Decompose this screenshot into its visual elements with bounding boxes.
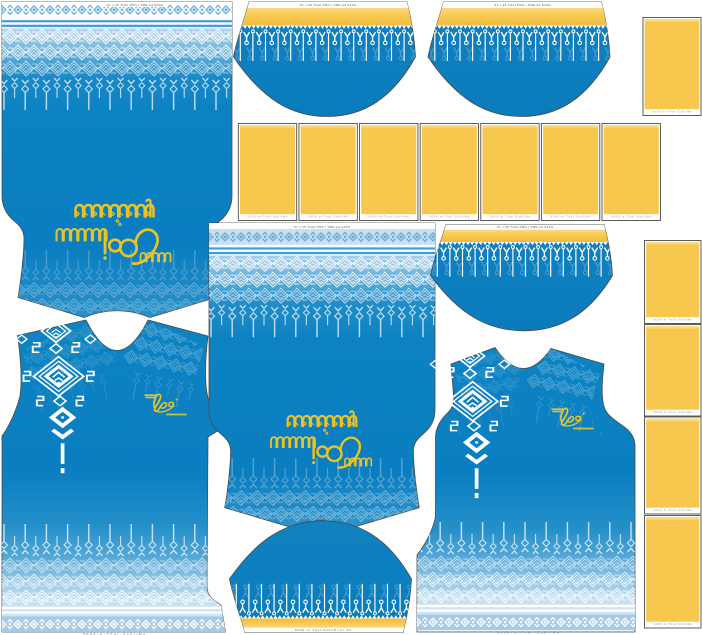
svg-text:9000-m-Thai-SubliWe: 9000-m-Thai-SubliWe: [654, 508, 693, 512]
svg-text:9000-m-Thai-SubliWe: 9000-m-Thai-SubliWe: [429, 215, 470, 219]
svg-text:9000-m-Thai-SubliWe: 9000-m-Thai-SubliWe: [654, 410, 693, 414]
svg-text:9000-m-Thai-SubliPrint-A2: 9000-m-Thai-SubliPrint-A2: [295, 628, 351, 632]
svg-text:9000-m-Thai-SubliWe: 9000-m-Thai-SubliWe: [308, 215, 349, 219]
svg-text:9000-m-Thai-SubliWe: 9000-m-Thai-SubliWe: [551, 215, 592, 219]
svg-text:97 x 25 THAI PRO | PRE A4 S2SS: 97 x 25 THAI PRO | PRE A4 S2SS: [495, 3, 551, 7]
svg-text:97 x 25 THAI PRO | PRE A4 S2SS: 97 x 25 THAI PRO | PRE A4 S2SS: [107, 3, 163, 7]
svg-text:97 x 25 THAI PRO | PRE A4 S2SS: 97 x 25 THAI PRO | PRE A4 S2SS: [294, 225, 350, 229]
svg-text:97 x 25 THAI PRO | PRE A4 S2SS: 97 x 25 THAI PRO | PRE A4 S2SS: [300, 3, 356, 7]
svg-text:9000-m-Thai-SubliWe: 9000-m-Thai-SubliWe: [654, 622, 693, 626]
svg-text:9000-m-Thai-SubliWe: 9000-m-Thai-SubliWe: [490, 215, 531, 219]
svg-text:9000-m-Thai-SubliWe: 9000-m-Thai-SubliWe: [369, 215, 410, 219]
svg-text:97 x 25 THAI PRO | PRE A4 S2SS: 97 x 25 THAI PRO | PRE A4 S2SS: [497, 225, 553, 229]
svg-text:9000-m-Thai-SubliWe: 9000-m-Thai-SubliWe: [611, 215, 652, 219]
svg-text:9000-m-Thai-SubliWe: 9000-m-Thai-SubliWe: [654, 318, 693, 322]
svg-text:9000-m-Thai-SubliWe: 9000-m-Thai-SubliWe: [652, 110, 693, 114]
svg-text:9000-m-Thai-SubliWe: 9000-m-Thai-SubliWe: [248, 215, 289, 219]
